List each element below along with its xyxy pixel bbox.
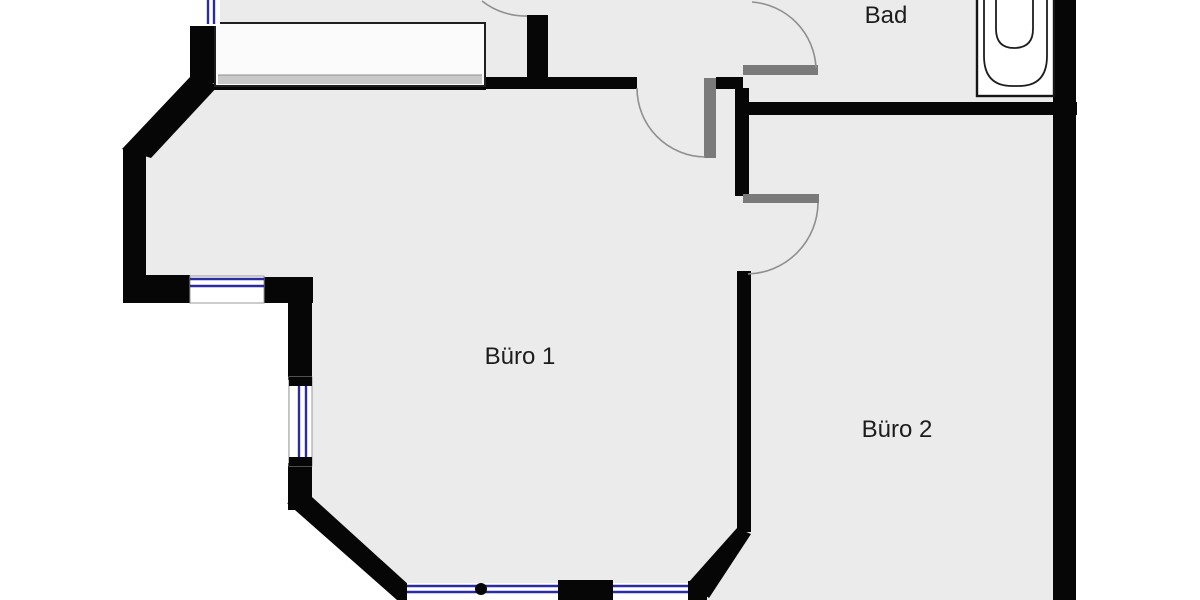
room-label-buero2: Büro 2 <box>862 416 933 443</box>
wall-corner-b <box>264 277 313 303</box>
wall-bottom-mullion <box>558 580 613 600</box>
wall-top-buero1 <box>485 77 637 89</box>
closet <box>215 23 485 86</box>
exterior-top-left <box>123 0 203 26</box>
wall-left <box>123 148 146 277</box>
wall-bad-buero2 <box>749 102 1077 115</box>
wall-bay-upper <box>288 300 312 380</box>
wall-bottom-piece <box>688 581 707 600</box>
wall-entry-nib <box>527 15 548 77</box>
exterior-left <box>0 0 123 600</box>
wall-corner-a <box>123 275 190 303</box>
bathtub-icon <box>977 0 1054 96</box>
floorplan-drawing: Bad Büro 1 Büro 2 <box>0 0 1200 600</box>
exterior-right <box>1076 0 1200 600</box>
window-left-upper <box>190 276 264 303</box>
room-label-bad: Bad <box>865 2 908 29</box>
room-label-buero1: Büro 1 <box>485 343 556 370</box>
floorplan-canvas: Bad Büro 1 Büro 2 <box>0 0 1200 600</box>
wall-hall-bad <box>735 88 749 196</box>
window-top-stub <box>202 0 220 26</box>
exterior-bay-left <box>123 303 288 600</box>
window-bay-left <box>289 377 312 466</box>
window-bottom-a <box>397 583 560 600</box>
wall-buero1-buero2 <box>737 271 751 532</box>
wall-between-doors <box>716 77 743 89</box>
window-column-dot <box>475 583 487 595</box>
wall-right <box>1053 0 1076 600</box>
window-bottom-b <box>613 583 688 600</box>
